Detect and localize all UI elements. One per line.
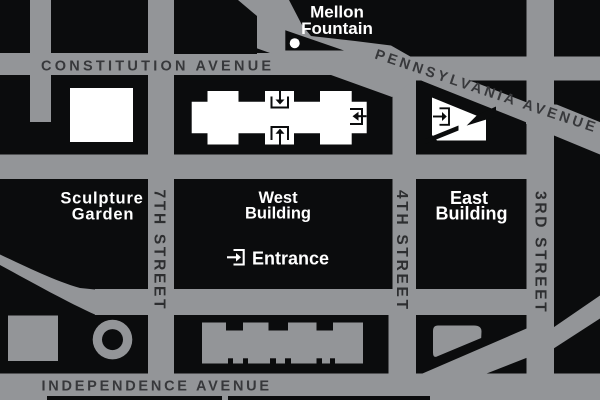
svg-text:3RD STREET: 3RD STREET [532,191,549,314]
svg-text:Garden: Garden [72,206,135,224]
svg-text:4TH STREET: 4TH STREET [393,190,410,312]
svg-text:Building: Building [436,203,508,223]
svg-text:Building: Building [245,205,311,223]
svg-text:Fountain: Fountain [301,19,373,38]
svg-text:INDEPENDENCE AVENUE: INDEPENDENCE AVENUE [42,378,272,394]
svg-text:Entrance: Entrance [252,248,329,268]
svg-text:CONSTITUTION AVENUE: CONSTITUTION AVENUE [41,58,274,74]
svg-text:7TH STREET: 7TH STREET [151,190,168,312]
